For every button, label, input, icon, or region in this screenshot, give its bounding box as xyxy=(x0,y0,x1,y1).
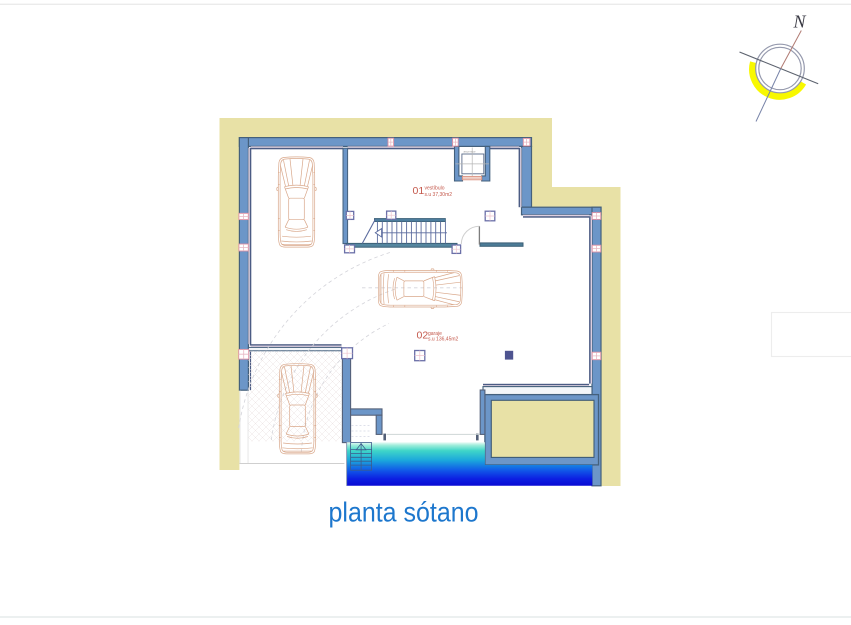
svg-text:02: 02 xyxy=(417,330,429,342)
svg-text:vestíbulo: vestíbulo xyxy=(425,186,445,192)
svg-text:01: 01 xyxy=(413,185,425,197)
svg-text:N: N xyxy=(793,12,807,32)
svg-text:planta sótano: planta sótano xyxy=(329,497,479,528)
svg-text:s.u 37,30m2: s.u 37,30m2 xyxy=(425,192,453,198)
svg-text:ascensor: ascensor xyxy=(464,149,476,153)
svg-text:s.u 136,45m2: s.u 136,45m2 xyxy=(428,337,459,343)
